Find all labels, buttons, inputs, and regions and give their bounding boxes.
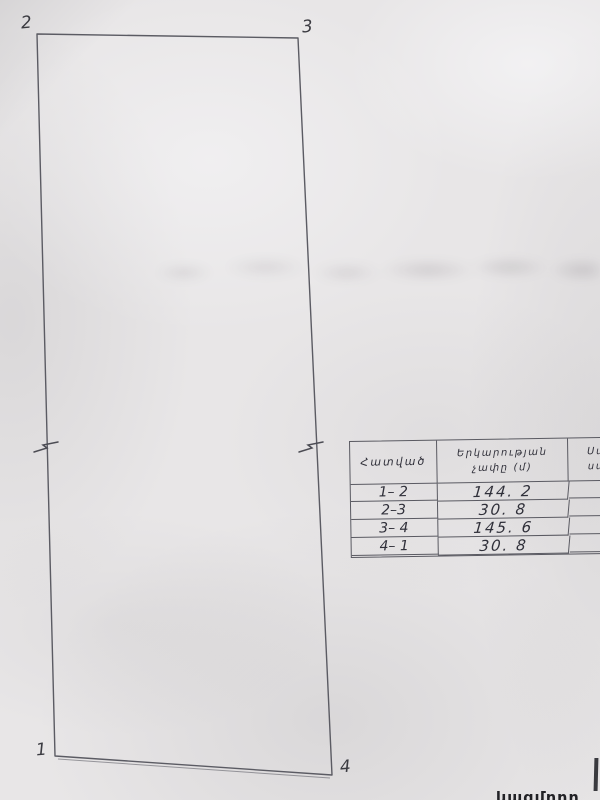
segment-to: – 4 bbox=[388, 520, 409, 536]
bottom-double-line bbox=[58, 759, 330, 778]
stamp-box-edge bbox=[594, 758, 599, 791]
segment-from: 1 bbox=[379, 484, 388, 500]
corner-label-3: 3 bbox=[301, 19, 313, 37]
table-row-adjacent: Ձ bbox=[569, 498, 600, 516]
segment-from: 3 bbox=[379, 520, 388, 536]
table-row-length: 30. 8 bbox=[438, 536, 571, 556]
table-row-segment: 2 –3 bbox=[351, 502, 438, 520]
corner-label-4: 4 bbox=[339, 759, 351, 777]
footer-cutoff-text: կազմողը bbox=[496, 788, 580, 800]
segment-to: – 1 bbox=[388, 538, 409, 554]
table-header-segment: Հատված bbox=[350, 441, 438, 485]
header-length-line2: չափը (մ) bbox=[472, 460, 532, 476]
table-row-adjacent: Հ bbox=[570, 534, 600, 552]
header-adjacent-line2: սահմ bbox=[588, 459, 600, 475]
table-row-segment: 1 – 2 bbox=[351, 484, 438, 502]
table-header-adjacent: Սահմ սահմ bbox=[568, 437, 600, 481]
table-row-adjacent: Վ bbox=[569, 516, 600, 534]
header-length-line1: Երկարության bbox=[457, 445, 548, 461]
table-row-adjacent: Ա bbox=[569, 480, 600, 498]
corner-label-1: 1 bbox=[35, 742, 47, 760]
break-mark-left-icon bbox=[34, 442, 58, 452]
segment-from: 2 bbox=[381, 502, 390, 518]
table-row-segment: 3 – 4 bbox=[351, 520, 438, 538]
header-segment-label: Հատված bbox=[360, 454, 426, 472]
parcel-outline bbox=[37, 34, 332, 775]
table-row-length: 30. 8 bbox=[437, 500, 570, 520]
break-mark-right-icon bbox=[299, 442, 323, 452]
scanned-page: 2 3 1 4 Հատված Երկարության չափը (մ) Սահմ… bbox=[0, 0, 600, 800]
segment-to: – 2 bbox=[387, 484, 408, 500]
measurements-table: Հատված Երկարության չափը (մ) Սահմ սահմ 1 … bbox=[349, 436, 600, 558]
table-row-length: 144. 2 bbox=[437, 482, 570, 502]
table-row-segment: 4 – 1 bbox=[352, 538, 439, 556]
table-header-length: Երկարության չափը (մ) bbox=[437, 439, 569, 484]
segment-to: –3 bbox=[390, 502, 406, 518]
table-row-length: 145. 6 bbox=[438, 518, 571, 538]
parcel-sketch bbox=[0, 0, 600, 800]
corner-label-2: 2 bbox=[20, 15, 32, 33]
segment-from: 4 bbox=[379, 538, 388, 554]
header-adjacent-line1: Սահմ bbox=[587, 444, 600, 460]
